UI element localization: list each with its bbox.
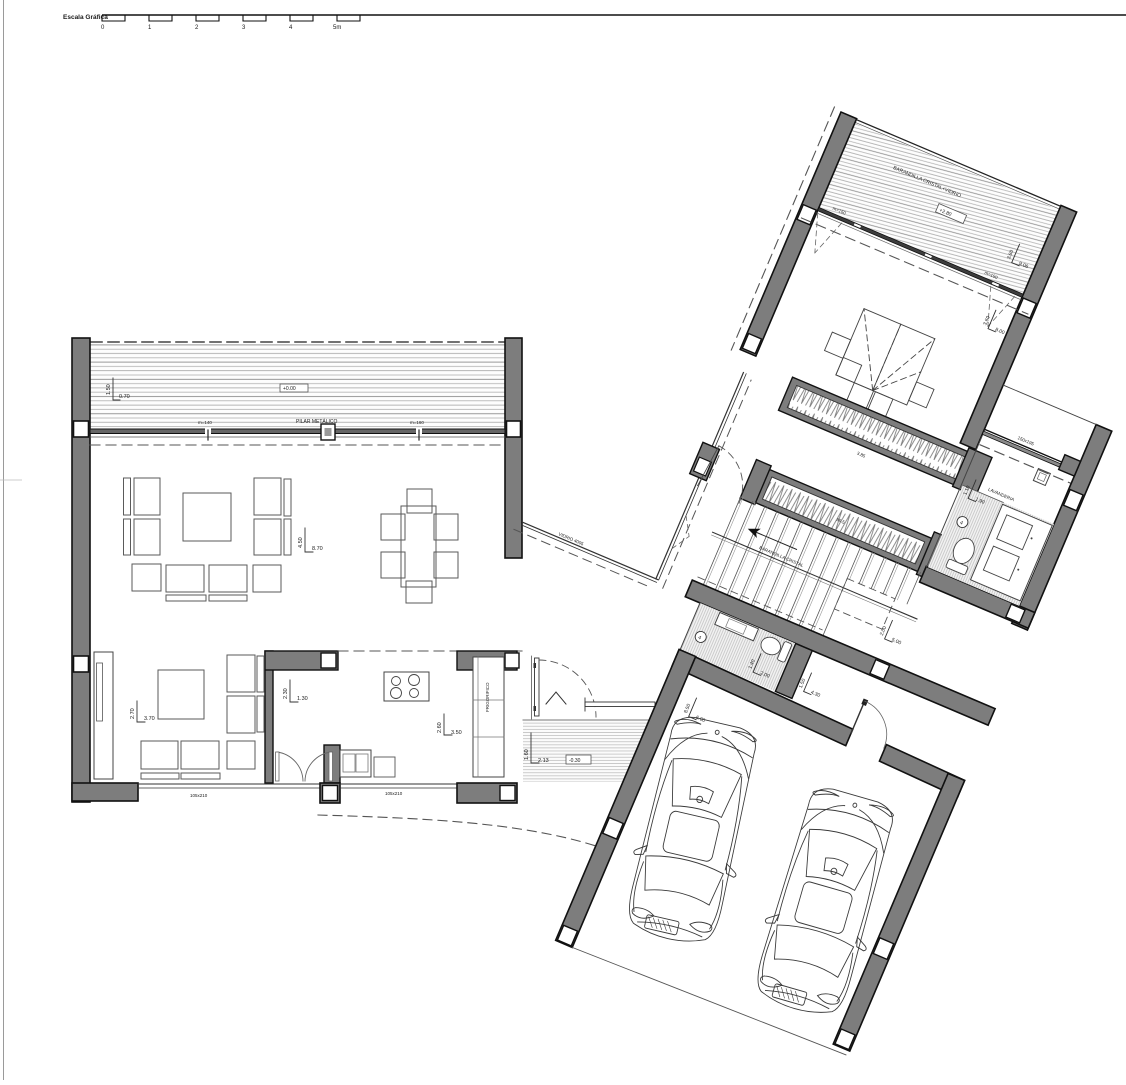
svg-text:2.60: 2.60 [437, 722, 443, 733]
svg-text:2.13: 2.13 [538, 758, 549, 764]
svg-text:1.50: 1.50 [106, 384, 112, 395]
svg-text:+0.00: +0.00 [283, 386, 296, 392]
svg-text:1.60: 1.60 [524, 749, 530, 760]
svg-text:Escala Gráfica: Escala Gráfica [63, 14, 108, 21]
svg-text:PILAR METÁLICO: PILAR METÁLICO [296, 418, 338, 425]
svg-text:FRIGORIFICO: FRIGORIFICO [485, 682, 490, 712]
svg-text:5m: 5m [333, 25, 341, 31]
svg-text:0.70: 0.70 [119, 394, 130, 400]
svg-text:3.50: 3.50 [451, 730, 462, 736]
svg-text:-0.30: -0.30 [569, 758, 581, 764]
svg-text:m=160: m=160 [410, 420, 424, 425]
svg-text:105x210: 105x210 [190, 793, 208, 798]
svg-text:105x210: 105x210 [385, 791, 403, 796]
svg-text:1.30: 1.30 [297, 696, 308, 702]
svg-text:2.70: 2.70 [130, 708, 136, 719]
svg-text:4.50: 4.50 [298, 537, 304, 548]
svg-text:8.70: 8.70 [312, 546, 323, 552]
svg-text:m=140: m=140 [198, 420, 212, 425]
svg-text:2.30: 2.30 [283, 688, 289, 699]
svg-text:3.70: 3.70 [144, 716, 155, 722]
